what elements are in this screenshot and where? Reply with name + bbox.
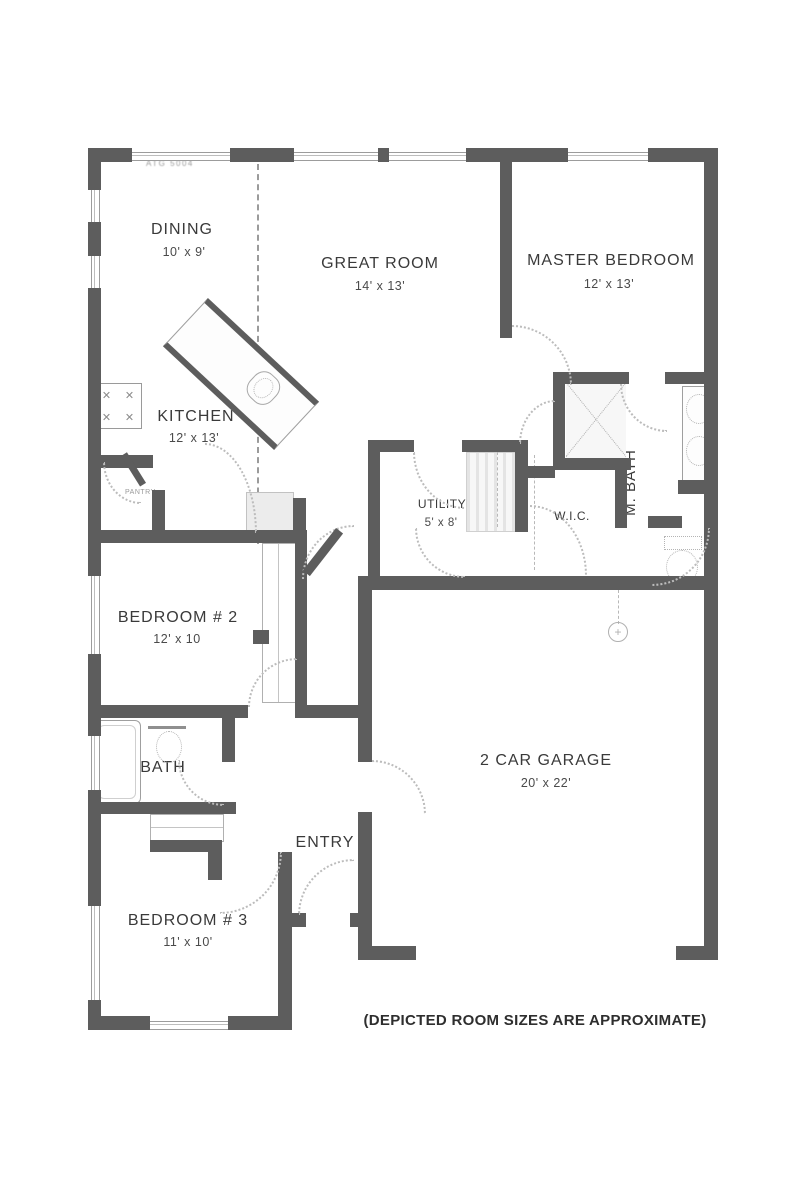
wall-segment <box>152 490 165 532</box>
door-swing-arc <box>519 400 555 444</box>
wall-segment <box>88 530 307 543</box>
wall-segment <box>665 372 718 384</box>
room-label-garage: 2 CAR GARAGE <box>480 752 612 770</box>
room-label-bedroom-2: BEDROOM # 2 <box>118 609 238 627</box>
wall-segment <box>500 162 512 338</box>
room-size-bedroom-3: 11' x 10' <box>163 935 212 949</box>
wall-segment <box>88 148 101 190</box>
room-size-dining: 10' x 9' <box>163 245 206 259</box>
wall-segment <box>515 452 528 532</box>
washer-dryer-icon <box>466 452 520 532</box>
wall-segment <box>350 913 372 927</box>
door-swing-arc <box>248 658 297 707</box>
wall-segment <box>88 1016 150 1030</box>
kitchen-island <box>163 298 319 450</box>
wall-segment <box>88 288 101 456</box>
wall-segment <box>253 630 269 644</box>
wall-segment <box>88 705 248 718</box>
window <box>91 576 100 654</box>
wall-segment <box>358 812 372 960</box>
wall-segment <box>528 466 555 478</box>
room-label-great-room: GREAT ROOM <box>321 255 439 273</box>
utility-stub-line <box>618 590 619 624</box>
wall-segment <box>704 148 718 960</box>
wall-segment <box>378 148 389 162</box>
wall-segment <box>648 516 682 528</box>
room-label-bedroom-3: BEDROOM # 3 <box>128 912 248 930</box>
closet-bedroom-3 <box>150 814 224 842</box>
window <box>568 152 648 161</box>
room-label-kitchen: KITCHEN <box>157 408 234 426</box>
window <box>91 906 100 1000</box>
window <box>294 152 378 161</box>
wall-segment <box>466 148 568 162</box>
wall-segment <box>230 148 294 162</box>
window <box>91 190 100 222</box>
door-swing-arc <box>415 528 465 578</box>
wall-segment <box>676 946 718 960</box>
window <box>91 736 100 790</box>
window <box>389 152 466 161</box>
stove-icon: ✕✕✕✕ <box>94 383 142 429</box>
wall-segment <box>88 456 101 576</box>
room-label-entry: ENTRY <box>296 834 355 852</box>
wall-segment <box>678 480 718 494</box>
floor-plan: DINING 10' x 9' GREAT ROOM 14' x 13' MAS… <box>0 0 800 1200</box>
door-swing-arc <box>512 325 572 385</box>
wall-segment <box>292 913 306 927</box>
wall-segment <box>293 498 306 532</box>
bathtub-inner-line <box>98 725 136 799</box>
wall-segment <box>88 654 101 736</box>
toilet-tank-icon <box>148 726 186 729</box>
closet-door-line <box>151 827 223 828</box>
wall-segment <box>368 440 380 576</box>
wall-segment <box>222 718 235 762</box>
room-label-dining: DINING <box>151 221 213 239</box>
wall-segment <box>553 458 631 470</box>
window <box>150 1021 228 1030</box>
closet-rod-line <box>497 452 498 527</box>
door-swing-arc <box>220 852 282 914</box>
wall-segment <box>368 946 416 960</box>
door-swing-arc <box>298 859 354 915</box>
toilet-icon <box>156 731 182 763</box>
door-swing-arc <box>372 760 426 814</box>
wall-segment <box>358 576 372 762</box>
door-swing-arc <box>620 384 667 432</box>
door-swing-arc <box>205 443 257 533</box>
wall-segment <box>615 470 627 528</box>
room-size-great-room: 14' x 13' <box>355 279 405 293</box>
window <box>132 152 230 161</box>
footnote: (DEPICTED ROOM SIZES ARE APPROXIMATE) <box>363 1012 706 1029</box>
room-size-master-bedroom: 12' x 13' <box>584 277 634 291</box>
room-label-master-bedroom: MASTER BEDROOM <box>527 252 695 270</box>
wall-segment <box>150 840 222 852</box>
window <box>91 256 100 288</box>
wall-segment <box>295 705 372 718</box>
wall-segment <box>88 222 101 256</box>
door-swing-arc <box>178 760 224 806</box>
shower-icon <box>566 384 626 458</box>
room-size-garage: 20' x 22' <box>521 776 571 790</box>
wall-segment <box>278 852 292 1030</box>
water-heater-icon: + <box>608 622 628 642</box>
room-size-bedroom-2: 12' x 10 <box>153 632 200 646</box>
